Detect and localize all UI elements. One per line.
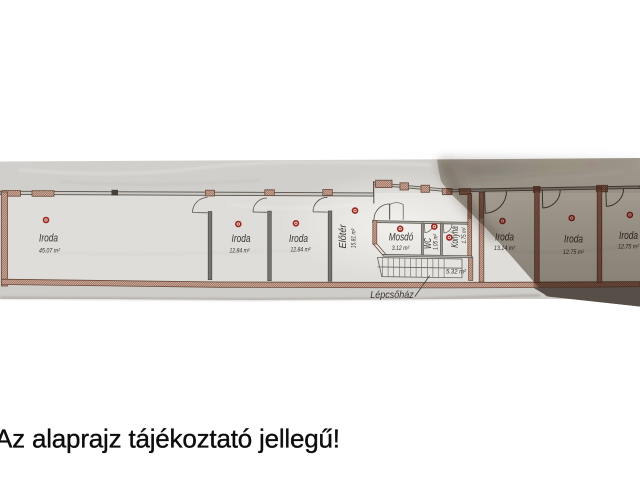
svg-text:1.05 m²: 1.05 m²: [434, 233, 440, 250]
svg-text:Az alaprajz tájékoztató jelleg: Az alaprajz tájékoztató jellegű!: [0, 424, 340, 454]
svg-text:3.12 m²: 3.12 m²: [392, 245, 410, 252]
svg-text:Mosdó: Mosdó: [389, 232, 414, 244]
svg-text:Lépcsőház: Lépcsőház: [370, 289, 414, 301]
svg-text:Konyha: Konyha: [450, 226, 461, 248]
svg-text:5.32 m²: 5.32 m²: [446, 269, 467, 276]
svg-text:Előtér: Előtér: [338, 224, 349, 249]
svg-text:1.75 m²: 1.75 m²: [462, 227, 468, 244]
svg-text:Iroda: Iroda: [232, 233, 251, 245]
svg-text:WC: WC: [423, 237, 434, 249]
svg-text:Iroda: Iroda: [39, 233, 58, 245]
svg-text:Iroda: Iroda: [289, 233, 308, 245]
svg-text:15.81 m²: 15.81 m²: [351, 228, 358, 248]
